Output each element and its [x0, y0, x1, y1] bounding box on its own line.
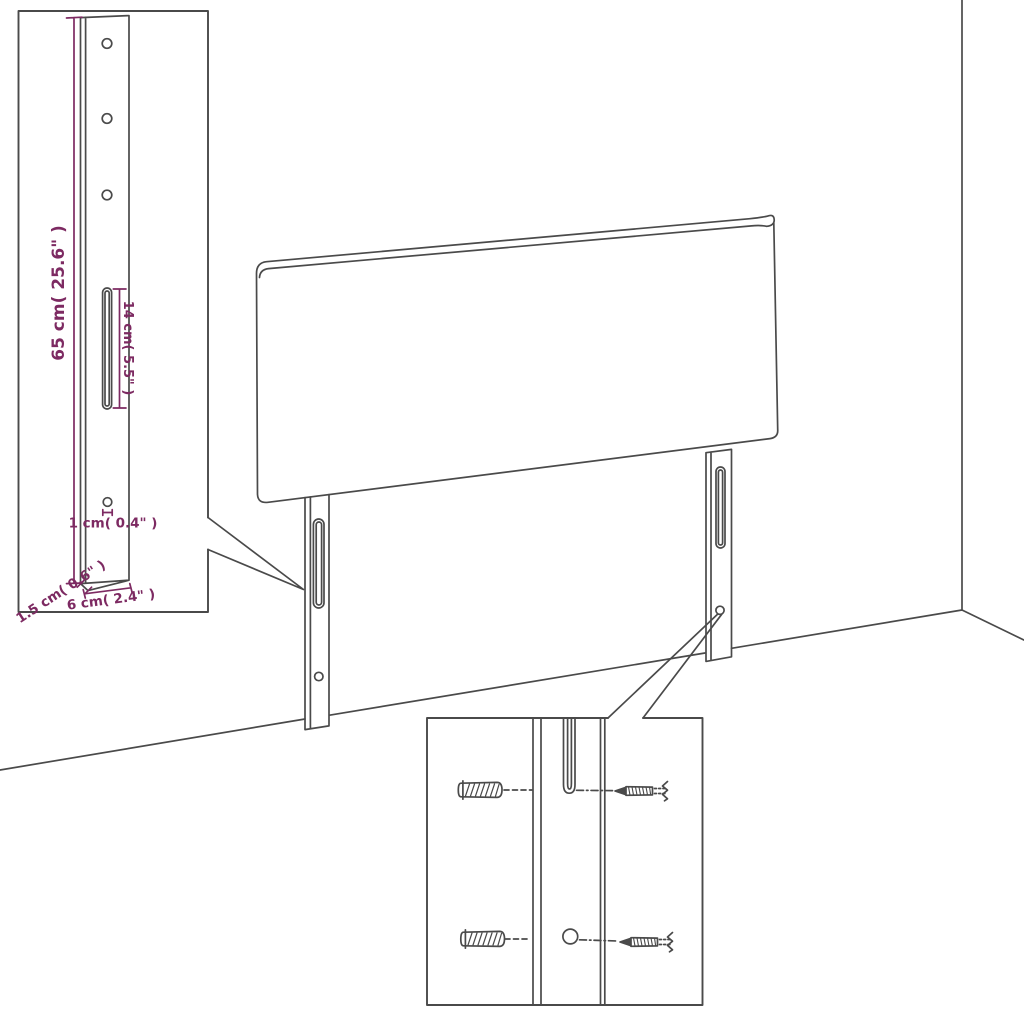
floor-line — [0, 610, 1024, 770]
headboard-dimension-diagram: 65 cm( 25.6" ) 14 cm( 5.5" ) 1 cm( 0.4" … — [0, 0, 1024, 1024]
wall-plug-icon — [458, 781, 502, 799]
wall-plug-icon — [461, 930, 505, 948]
alignment-dashes-upper — [504, 790, 532, 939]
mounting-detail-inset-box — [427, 718, 703, 1005]
left-leg — [305, 495, 329, 730]
alignment-dashes-lower — [577, 790, 619, 941]
diagram-page: 65 cm( 25.6" ) 14 cm( 5.5" ) 1 cm( 0.4" … — [0, 0, 1024, 1024]
dim-slot-label: 14 cm( 5.5" ) — [120, 301, 135, 396]
dim-height-label: 65 cm( 25.6" ) — [49, 225, 69, 361]
headboard-panel — [257, 215, 778, 502]
screw-icon — [615, 782, 668, 801]
mounting-screw-hole — [563, 929, 578, 944]
mounting-leg-edges — [533, 718, 605, 1005]
left-leg-hole — [315, 672, 323, 680]
dim-hole-label: 1 cm( 0.4" ) — [69, 516, 158, 532]
right-leg-slot — [716, 467, 725, 548]
inset-leg-small-hole — [103, 498, 112, 507]
inset-leg-slot — [103, 288, 112, 409]
right-leg-hole — [716, 606, 724, 614]
mounting-detail — [458, 718, 672, 1005]
screw-icon — [620, 933, 673, 952]
inset-leg-hole-top — [102, 39, 112, 49]
leg-detail-callout — [208, 518, 304, 590]
inset-leg-hole-middle — [102, 114, 112, 124]
mounting-keyhole-slot — [564, 718, 576, 793]
headboard-top-seam — [260, 226, 767, 278]
inset-leg-hole-lower — [102, 190, 112, 200]
